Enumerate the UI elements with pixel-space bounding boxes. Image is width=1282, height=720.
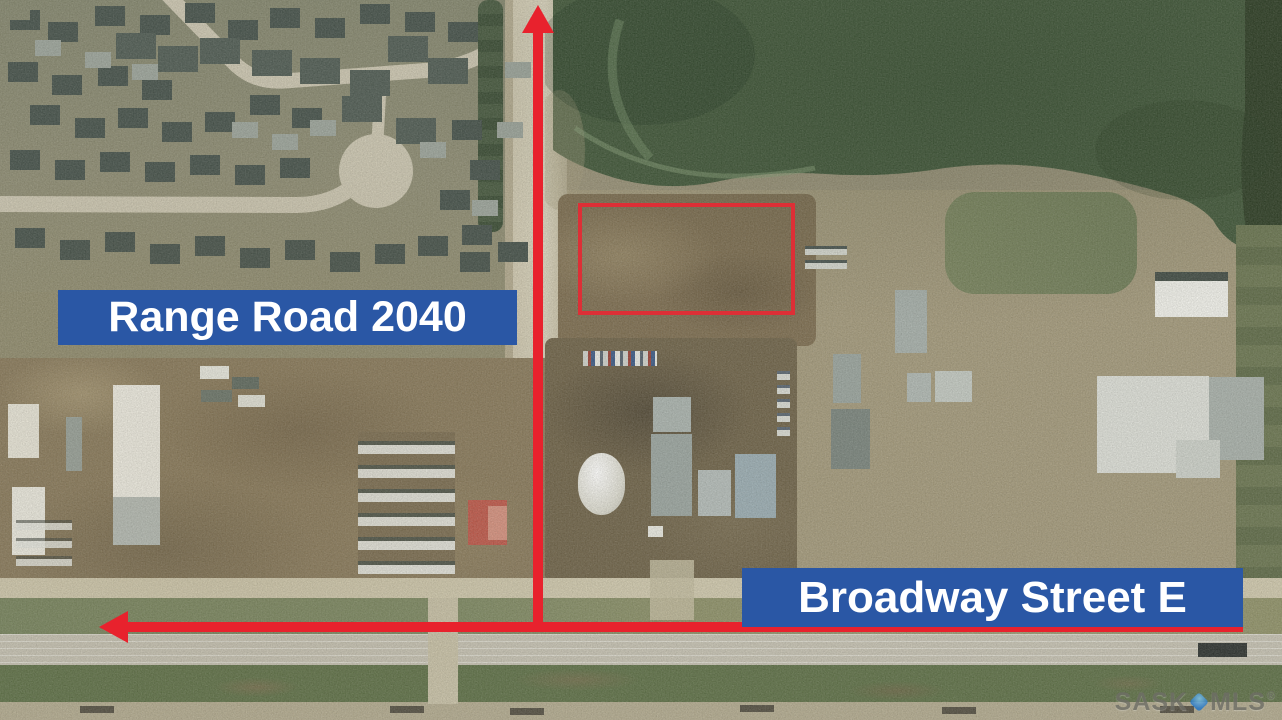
north-arrow-shaft <box>533 28 543 630</box>
range-road-label-text: Range Road 2040 <box>108 293 466 342</box>
building <box>113 385 160 497</box>
building <box>200 366 229 379</box>
building <box>935 371 972 402</box>
building <box>113 497 160 545</box>
building <box>907 373 931 402</box>
building <box>831 409 870 469</box>
driveway <box>650 560 694 620</box>
building <box>8 404 39 458</box>
building <box>651 434 692 516</box>
grass-patch <box>945 192 1137 294</box>
sask-mls-watermark: SASK MLS ® <box>1115 688 1276 716</box>
building <box>1198 643 1247 657</box>
aerial-map: Range Road 2040 Broadway Street E SASK M… <box>0 0 1282 720</box>
dirt-lot <box>0 358 545 598</box>
parked-vehicles <box>16 520 72 566</box>
location-pin-icon <box>1189 692 1209 712</box>
parked-vehicles <box>805 243 847 269</box>
building <box>1155 272 1228 281</box>
west-arrow-head <box>99 611 128 643</box>
building <box>238 395 265 407</box>
building <box>735 454 776 518</box>
highway-median <box>0 665 1282 702</box>
median-crossing <box>428 598 458 704</box>
building <box>232 377 259 389</box>
highway-lanes <box>0 634 1282 665</box>
parked-vehicles <box>583 351 657 366</box>
building <box>488 506 507 540</box>
tree-line <box>478 0 503 232</box>
residential-streets <box>0 0 545 292</box>
building <box>895 290 927 353</box>
houses <box>0 0 26 16</box>
storage-tank <box>578 453 625 515</box>
range-road-label: Range Road 2040 <box>58 290 517 345</box>
building <box>648 526 663 537</box>
north-arrow-head <box>522 5 554 33</box>
building <box>833 354 861 403</box>
building <box>1176 440 1220 478</box>
property-outline <box>578 203 795 315</box>
broadway-street-label: Broadway Street E <box>742 568 1243 627</box>
registered-trademark-symbol: ® <box>1267 690 1276 702</box>
highway-shoulder <box>0 702 1282 720</box>
building <box>66 417 82 471</box>
building <box>201 390 232 402</box>
pavement-marks <box>80 706 114 713</box>
building <box>698 470 731 516</box>
parked-vehicles <box>777 366 790 436</box>
parked-vehicles <box>358 432 455 574</box>
broadway-street-label-text: Broadway Street E <box>798 573 1187 623</box>
building <box>653 397 691 432</box>
watermark-sask-text: SASK <box>1115 688 1188 717</box>
watermark-mls-text: MLS <box>1210 688 1266 717</box>
